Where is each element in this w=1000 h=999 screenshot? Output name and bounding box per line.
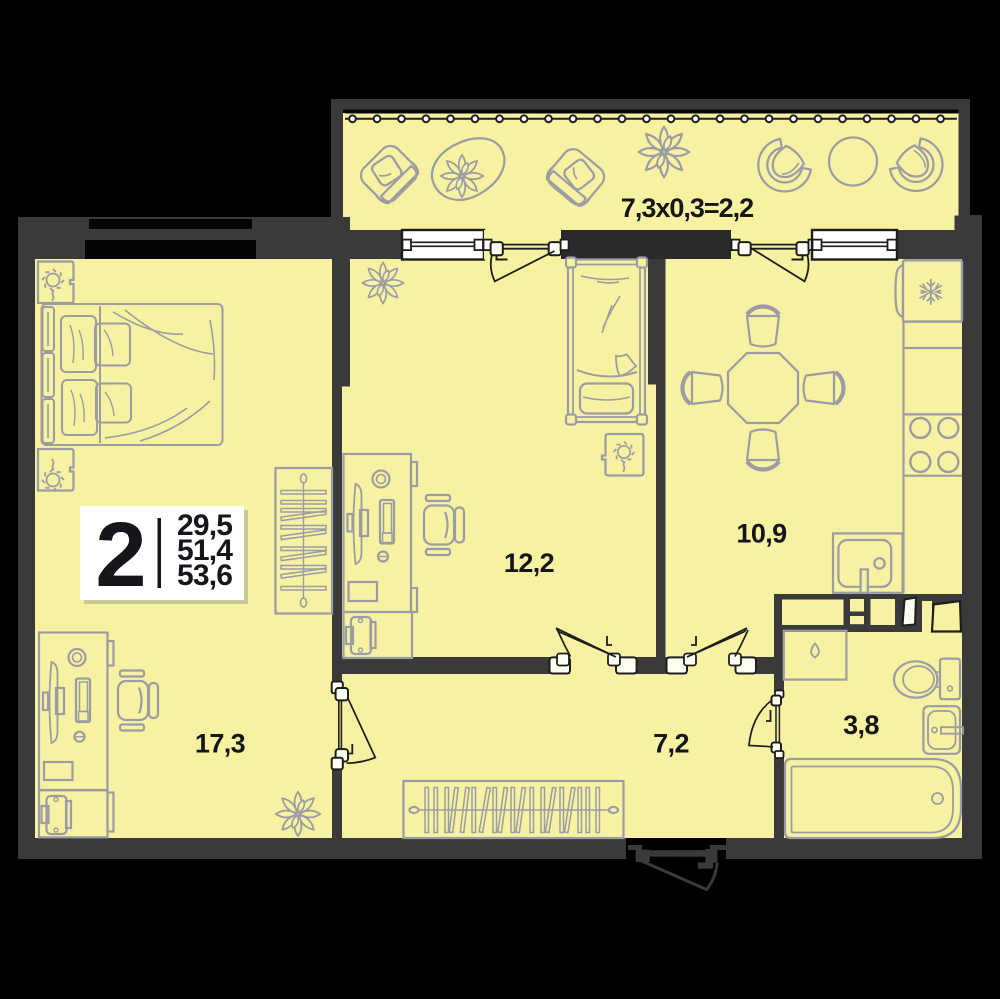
svg-text:10,9: 10,9 bbox=[736, 519, 787, 549]
svg-text:7,2: 7,2 bbox=[653, 729, 689, 759]
svg-text:3,8: 3,8 bbox=[843, 710, 879, 740]
svg-text:53,6: 53,6 bbox=[177, 559, 232, 592]
svg-text:2: 2 bbox=[95, 504, 146, 606]
svg-text:17,3: 17,3 bbox=[195, 729, 246, 759]
svg-text:7,3x0,3=2,2: 7,3x0,3=2,2 bbox=[621, 193, 753, 223]
svg-text:12,2: 12,2 bbox=[504, 548, 554, 578]
